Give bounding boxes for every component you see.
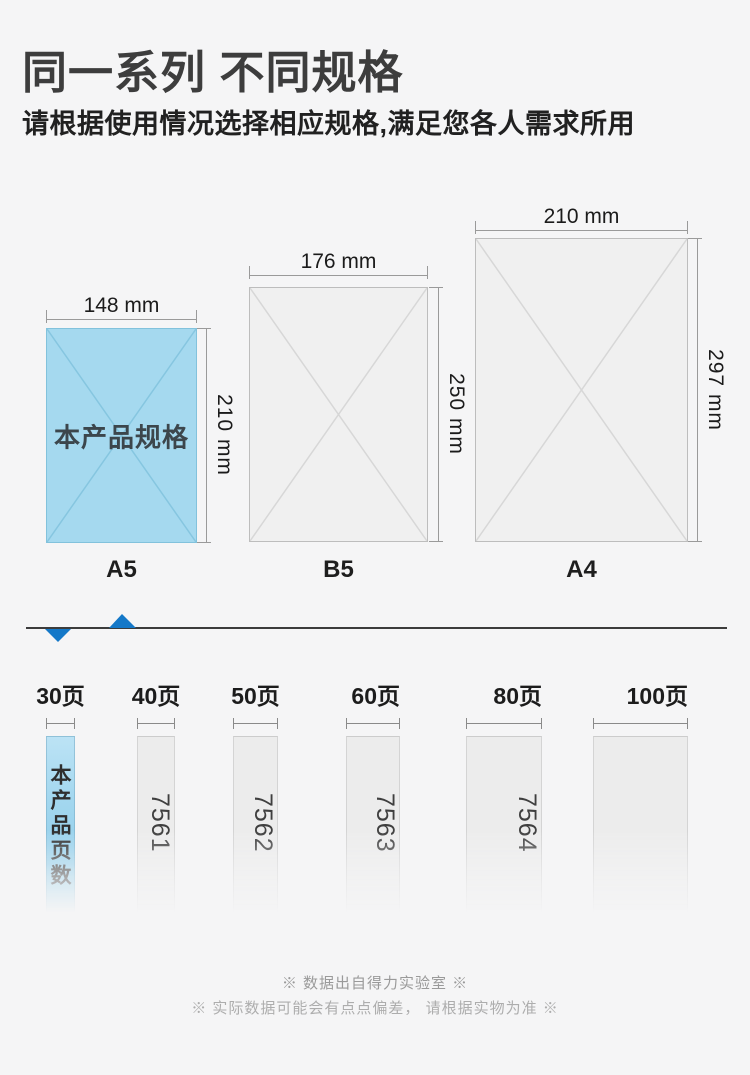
product-code: 7561 — [138, 763, 174, 883]
diagonal-cross-icon — [476, 239, 687, 541]
spine-bar: 7561 — [137, 736, 175, 918]
size-label-b5: B5 — [249, 556, 428, 584]
page-count-column-50: 50页 7562 — [233, 684, 278, 918]
b5-paper-box — [249, 287, 428, 542]
size-label-a4: A4 — [475, 556, 688, 584]
page-count-label: 50页 — [231, 684, 280, 709]
page-title: 同一系列 不同规格 — [22, 36, 404, 101]
size-label-a5: A5 — [46, 556, 197, 584]
product-code: 7562 — [234, 763, 277, 883]
product-pages-note: 本产品页数 — [47, 751, 74, 901]
page-count-label: 40页 — [132, 684, 181, 709]
a5-height-label: 210 mm — [212, 394, 236, 476]
width-bracket — [593, 718, 688, 729]
width-bracket — [233, 718, 278, 729]
page-count-column-80: 80页 7564 — [466, 684, 542, 918]
page-subtitle: 请根据使用情况选择相应规格,满足您各人需求所用 — [22, 102, 635, 141]
page-count-label: 80页 — [493, 684, 542, 709]
width-bracket — [466, 718, 542, 729]
a4-width-label: 210 mm — [475, 205, 688, 228]
spine-bar-highlighted: 本产品页数 — [46, 736, 75, 918]
diagonal-cross-icon — [250, 288, 427, 541]
a4-height-dim-line — [697, 238, 698, 542]
page-count-label: 30页 — [36, 684, 85, 709]
a5-width-dim-line — [46, 319, 197, 320]
a5-width-dimension: 148 mm — [46, 294, 197, 320]
footer-note-1: ※ 数据出自得力实验室 ※ — [0, 972, 750, 993]
b5-height-dim-line — [438, 287, 439, 542]
a5-paper-box: 本产品规格 — [46, 328, 197, 543]
spine-bar: 7564 — [466, 736, 542, 918]
a4-width-dim-line — [475, 230, 688, 231]
page-count-column-60: 60页 7563 — [346, 684, 400, 918]
triangle-down-icon — [45, 629, 71, 642]
page-count-label: 60页 — [351, 684, 400, 709]
spine-bar — [593, 736, 688, 918]
page-count-column-100: 100页 — [593, 684, 688, 918]
product-code: 7564 — [467, 763, 541, 883]
b5-height-label: 250 mm — [444, 373, 468, 455]
width-bracket — [137, 718, 175, 729]
b5-width-label: 176 mm — [249, 250, 428, 273]
product-code: 7563 — [347, 763, 399, 883]
page-count-label: 100页 — [627, 684, 688, 709]
a4-width-dimension: 210 mm — [475, 205, 688, 231]
b5-width-dimension: 176 mm — [249, 250, 428, 276]
width-bracket — [346, 718, 400, 729]
footer-note-2: ※ 实际数据可能会有点点偏差， 请根据实物为准 ※ — [0, 997, 750, 1018]
page-count-column-40: 40页 7561 — [137, 684, 175, 918]
width-bracket — [46, 718, 75, 729]
triangle-up-icon — [109, 614, 136, 628]
spine-bar: 7562 — [233, 736, 278, 918]
b5-width-dim-line — [249, 275, 428, 276]
a4-height-label: 297 mm — [703, 349, 727, 431]
a4-paper-box — [475, 238, 688, 542]
spine-bar: 7563 — [346, 736, 400, 918]
a5-width-label: 148 mm — [46, 294, 197, 317]
a5-product-spec-note: 本产品规格 — [47, 417, 196, 454]
infographic-page: 同一系列 不同规格 请根据使用情况选择相应规格,满足您各人需求所用 148 mm… — [0, 0, 750, 1075]
a5-height-dim-line — [206, 328, 207, 543]
page-count-column-30: 30页 本产品页数 — [46, 684, 75, 918]
